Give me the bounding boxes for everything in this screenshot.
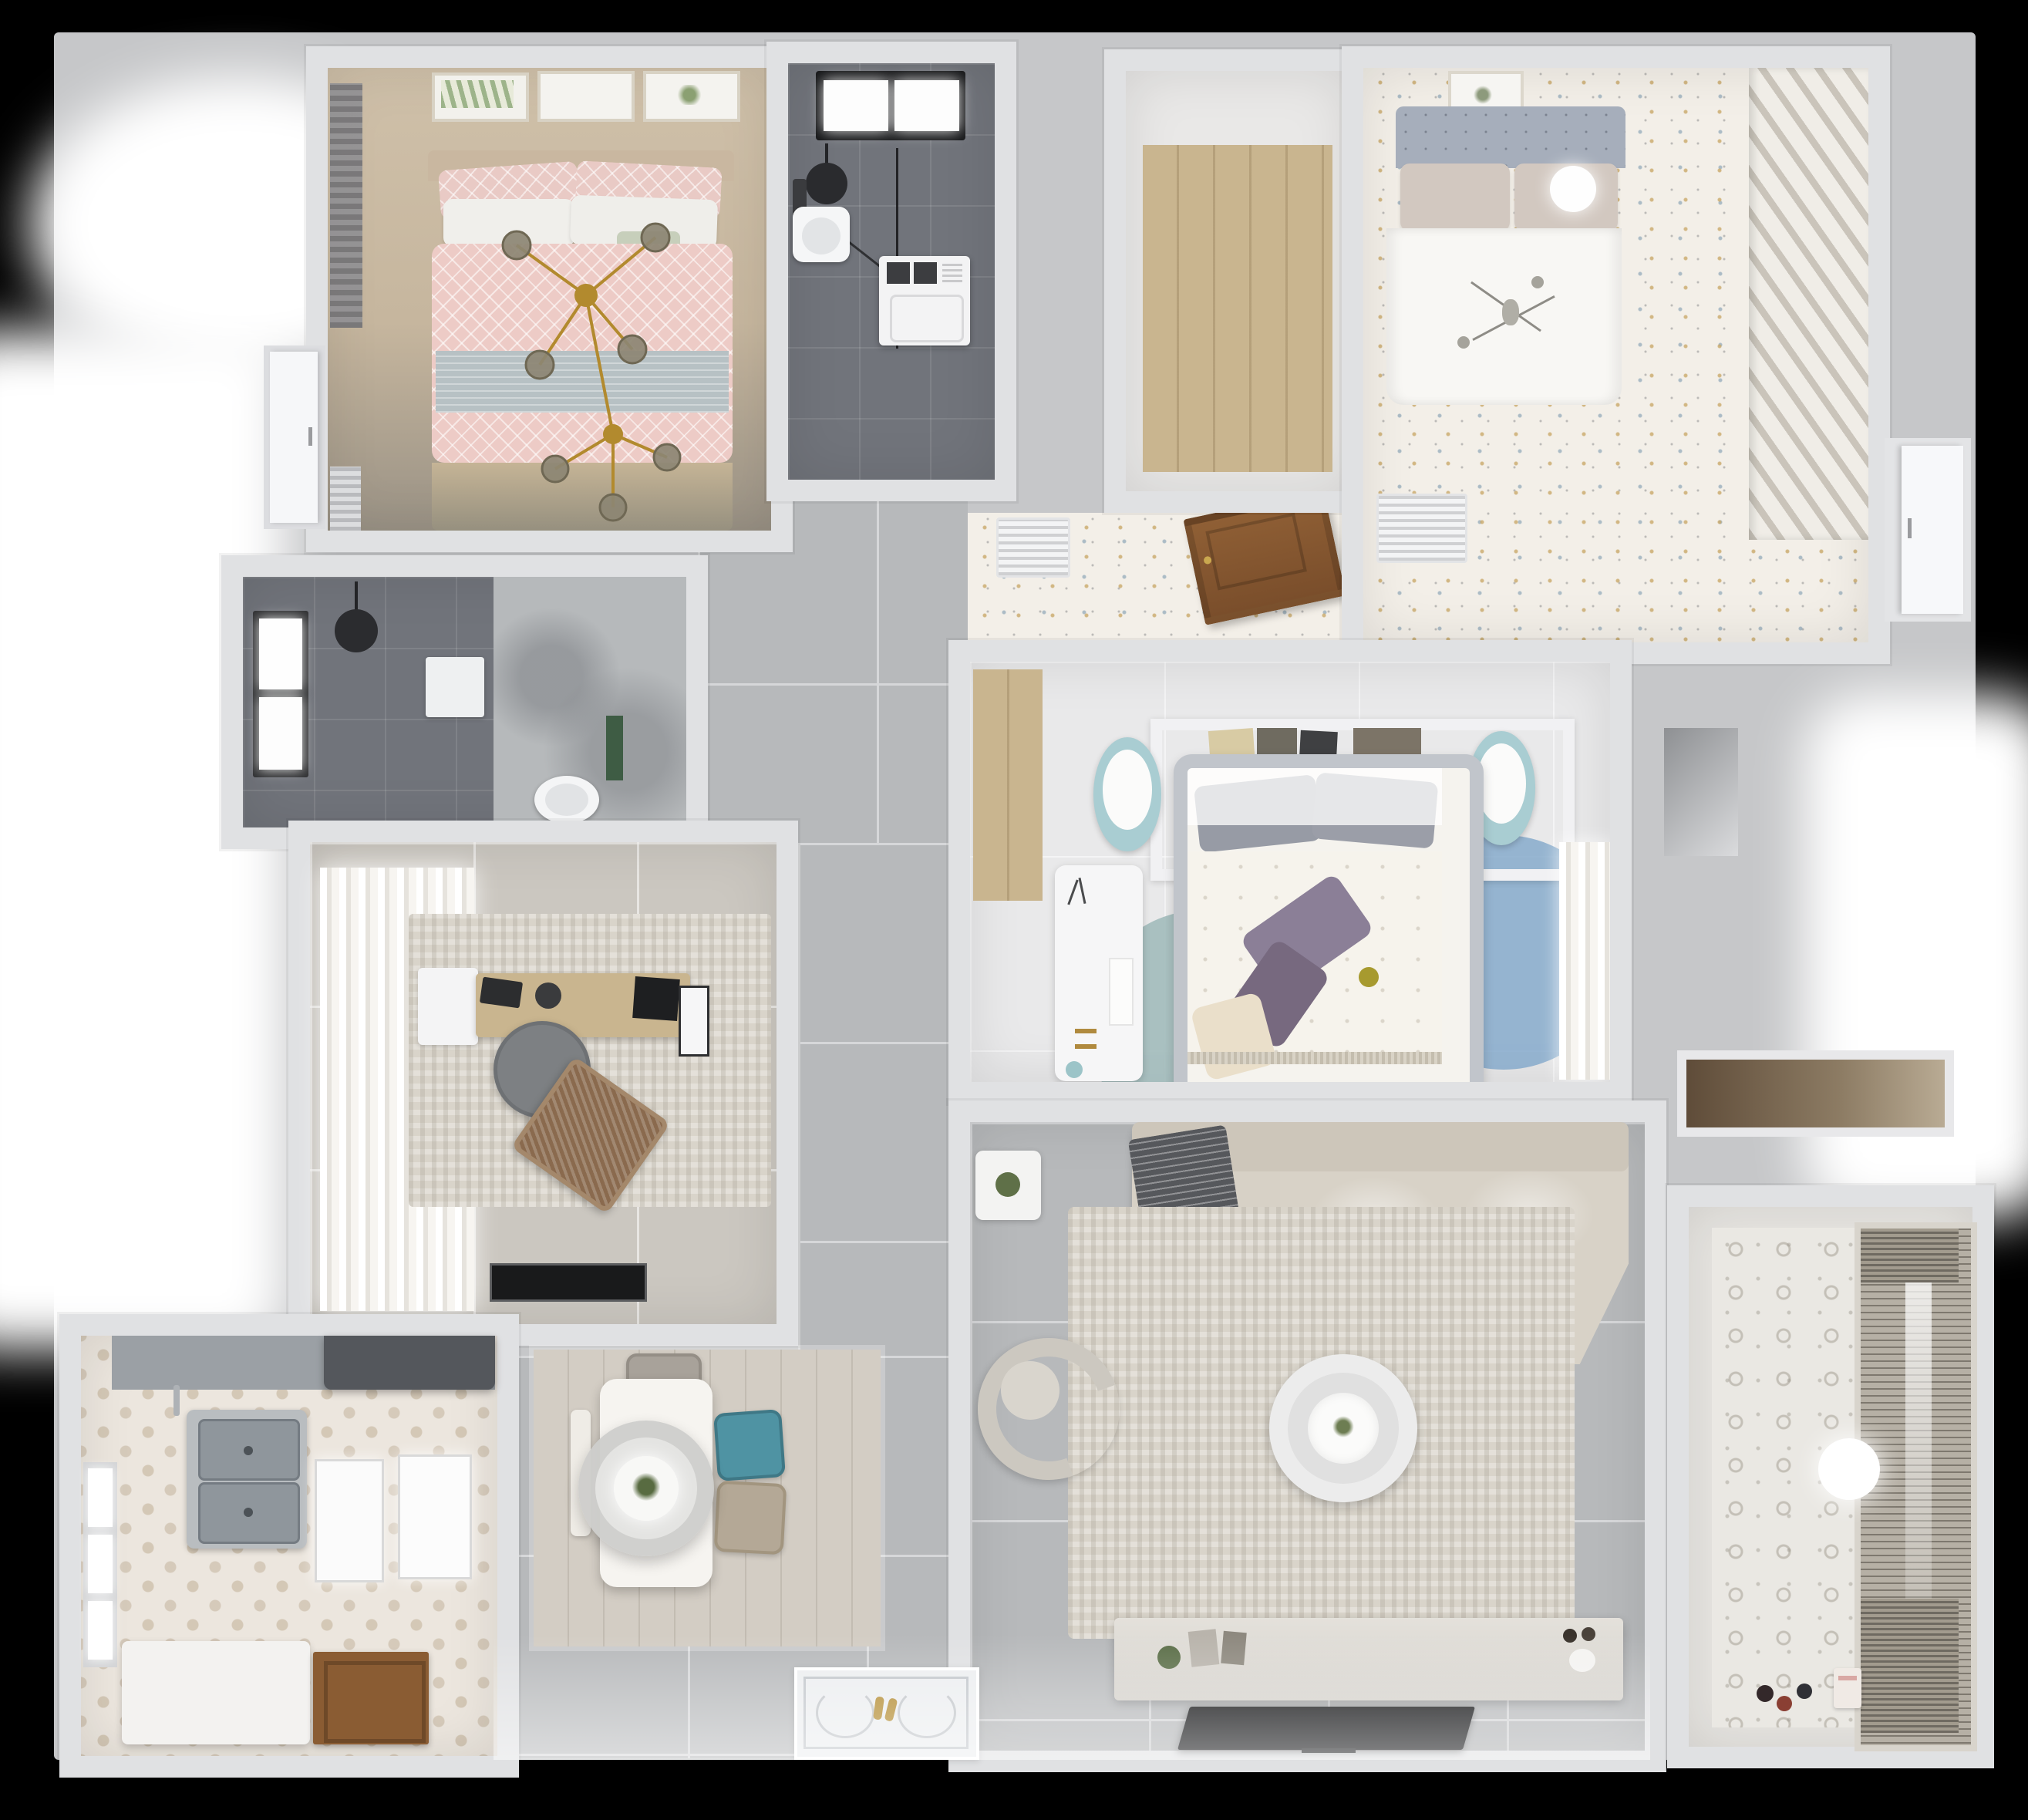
window-pane (88, 1601, 113, 1660)
cabinet-panel (315, 1459, 384, 1582)
white-shelf (679, 986, 709, 1057)
shower-head (806, 163, 847, 204)
wood-nook (973, 669, 1043, 901)
pens (1078, 878, 1086, 904)
toilet (793, 207, 850, 262)
console-frame (1188, 1629, 1220, 1667)
teal-cup (1066, 1061, 1083, 1078)
door-panel (324, 1661, 426, 1743)
blind-dense-band (1861, 1228, 1959, 1282)
range-hood (324, 1336, 495, 1390)
coffee-table-top (1308, 1393, 1379, 1464)
picture-frame (537, 71, 635, 122)
flat-tv (1177, 1707, 1475, 1750)
paper (1109, 958, 1134, 1026)
stool-top (1103, 750, 1152, 830)
frame-art (672, 85, 706, 105)
black-doormat (490, 1263, 647, 1302)
skylight-window (816, 71, 965, 140)
canopy-sheer (1187, 768, 1442, 825)
room-dining (534, 1350, 881, 1646)
armchair-seat (1001, 1361, 1059, 1420)
room-kitchen (81, 1336, 497, 1756)
ac-floor-vent (1376, 494, 1467, 563)
white-side-table (418, 968, 478, 1045)
washer-label (942, 264, 962, 282)
gold-handle (1075, 1029, 1097, 1033)
gold-ornament (1359, 967, 1379, 987)
window-pane (88, 1468, 113, 1527)
skylight-pane (894, 80, 959, 131)
skylight-pane (824, 80, 888, 131)
entry-shoe-shelf (1677, 1050, 1954, 1137)
window-reflection (1905, 1282, 1932, 1599)
side-door-niche (1885, 438, 1971, 622)
mini-chandelier-globe (1531, 276, 1544, 288)
room-master-bedroom (970, 662, 1610, 1082)
door-handle (308, 427, 312, 446)
toilet (534, 776, 599, 824)
window (83, 1462, 117, 1667)
dining-chair-beige (714, 1481, 787, 1555)
window-curtain-dark (330, 83, 362, 328)
frame-art (441, 80, 514, 108)
wood-plank-floor (1143, 145, 1332, 472)
toy-box-stripe (1838, 1676, 1857, 1680)
sink-basin (198, 1419, 300, 1481)
room-bathroom-2 (243, 577, 686, 827)
pillow (1400, 163, 1510, 231)
book (1257, 728, 1297, 757)
tv-console (1114, 1618, 1623, 1700)
room-study (310, 842, 777, 1324)
white-duvet (1386, 228, 1622, 405)
desk-accessory (535, 982, 561, 1009)
cabinet-panel (398, 1454, 472, 1579)
toilet-seat (545, 784, 588, 816)
toy (1757, 1685, 1774, 1702)
tufted-headboard (1396, 106, 1625, 168)
ceiling-light (1818, 1438, 1880, 1500)
radiator (330, 467, 361, 531)
shower-arm (825, 143, 828, 165)
light-blob-right (1804, 694, 2028, 1218)
shower-head (335, 609, 378, 652)
floor-vent (996, 517, 1070, 578)
round-wall-light (1550, 166, 1596, 212)
gold-sputnik-chandelier (470, 203, 702, 527)
doormat-arc (898, 1687, 956, 1738)
picture-frame (432, 72, 529, 122)
sink-basin (198, 1482, 300, 1544)
white-desk (1055, 865, 1143, 1081)
doormat-arc (816, 1687, 874, 1738)
drain (244, 1446, 253, 1455)
console-bottle (1563, 1629, 1577, 1643)
hallway-lower (798, 843, 968, 1356)
toilet-seat (802, 217, 841, 254)
washer-control (887, 262, 910, 284)
console-bottle (1582, 1627, 1595, 1641)
light-blob-left-column (0, 332, 285, 1350)
wall-shelf (426, 657, 484, 717)
round-stool (1093, 737, 1161, 851)
side-table (975, 1151, 1041, 1220)
plant (995, 1172, 1020, 1197)
floor-plan-canvas (0, 0, 2028, 1820)
master-bed (1174, 754, 1484, 1082)
picture-frame (643, 71, 740, 122)
washing-machine (879, 256, 970, 345)
faucet (173, 1385, 180, 1416)
washer-door (890, 295, 964, 342)
room-balcony (1689, 1207, 1972, 1747)
console-frame (1221, 1631, 1247, 1665)
mini-chandelier-hub (1502, 299, 1519, 325)
window-pane (259, 618, 302, 689)
bed-fringe (1187, 1052, 1442, 1064)
pens (1067, 880, 1078, 905)
console-plant (1157, 1646, 1181, 1669)
wood-door (313, 1652, 429, 1744)
blind-dense-band (1861, 1599, 1959, 1733)
window-pane (259, 697, 302, 770)
door-panel (1205, 513, 1307, 591)
monitor (632, 976, 680, 1021)
room-living (970, 1122, 1645, 1751)
dining-chair-teal (713, 1409, 786, 1481)
frame-art (1473, 85, 1493, 105)
room-walk-in-closet (1126, 71, 1349, 491)
mini-chandelier-globe (1457, 336, 1470, 349)
table-plant (1332, 1416, 1354, 1437)
toy (1777, 1696, 1792, 1711)
double-sink (187, 1410, 307, 1549)
tv-stand (1302, 1748, 1356, 1753)
slatted-wardrobe (1749, 68, 1868, 540)
bedroom1-entry-door (264, 345, 325, 529)
room-bathroom-1 (788, 63, 995, 480)
room-vestibule (968, 513, 1342, 644)
plant-shelf (606, 716, 623, 780)
light-well-window (1664, 728, 1738, 856)
washer-control (914, 262, 937, 284)
toy-box (1834, 1668, 1861, 1708)
door-handle (1908, 518, 1912, 538)
island-bench (122, 1641, 310, 1744)
plant-centerpiece (632, 1473, 660, 1501)
sheer-curtains-right (1559, 842, 1610, 1080)
drain (244, 1508, 253, 1517)
window (253, 611, 308, 777)
console-cup (1569, 1649, 1595, 1672)
laptop (480, 977, 523, 1009)
toy (1797, 1684, 1812, 1699)
entry-doormat (794, 1667, 979, 1760)
hallway-upper (698, 484, 968, 843)
room-bedroom-1 (328, 68, 771, 531)
room-bedroom-2 (1363, 68, 1868, 642)
window-pane (88, 1535, 113, 1593)
gold-handle (1075, 1044, 1097, 1049)
stool-top (1477, 743, 1526, 824)
pendant-lamp-inner (614, 1456, 679, 1521)
shower-rod (355, 581, 358, 611)
